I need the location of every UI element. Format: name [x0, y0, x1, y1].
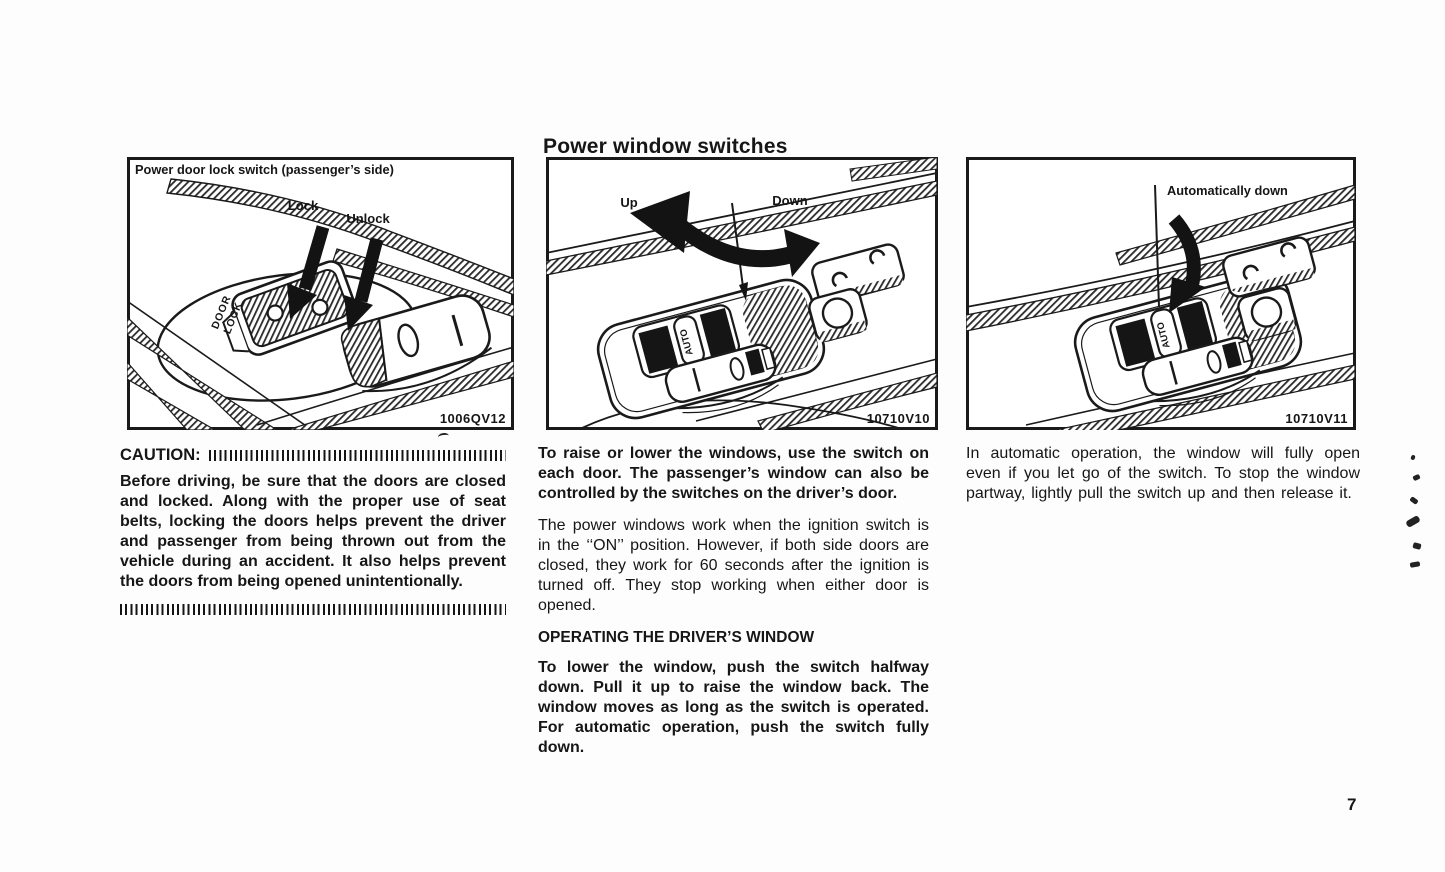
door-lock-illustration: DOOR LOCK Lock Unlock Power door lock sw… — [127, 157, 514, 430]
auto-down-illustration: AUTO Automatically down 10710V11 — [966, 157, 1356, 430]
tick-border-bottom — [120, 604, 506, 615]
paragraph-ignition: The power windows work when the ignition… — [538, 516, 929, 616]
scan-artifact — [1409, 496, 1418, 505]
scan-artifact — [1405, 515, 1421, 528]
auto-operation-column: In automatic operation, the window will … — [966, 444, 1360, 516]
up-label: Up — [620, 195, 637, 210]
unlock-label: Unlock — [346, 211, 390, 226]
lock-label: Lock — [288, 198, 319, 213]
figure-code: 1006QV12 — [440, 411, 506, 426]
figure-panel-door-lock: DOOR LOCK Lock Unlock Power door lock sw… — [127, 157, 514, 430]
scan-artifact — [1412, 474, 1420, 481]
figure-panel-window-updown: AUTO Up Down 10710V10 — [546, 157, 938, 430]
page-title: Power window switches — [543, 135, 788, 159]
caution-header: CAUTION: — [120, 444, 506, 466]
tick-border-top — [209, 450, 506, 461]
scan-artifact — [1410, 561, 1421, 568]
section-heading-drivers-window: OPERATING THE DRIVER’S WINDOW — [538, 628, 929, 648]
figure-code: 10710V10 — [867, 411, 930, 426]
caution-paragraph: Before driving, be sure that the doors a… — [120, 472, 506, 592]
paragraph-lower-window: To lower the window, push the switch hal… — [538, 658, 929, 758]
scan-artifact-tilde — [438, 432, 450, 440]
window-operation-column: To raise or lower the windows, use the s… — [538, 444, 929, 770]
down-label: Down — [772, 193, 807, 208]
caution-heading: CAUTION: — [120, 445, 201, 465]
paragraph-raise-lower: To raise or lower the windows, use the s… — [538, 444, 929, 504]
window-switch-illustration: AUTO Up Down 10710V10 — [546, 157, 938, 430]
figure-code: 10710V11 — [1285, 411, 1348, 426]
caution-column: CAUTION: Before driving, be sure that th… — [120, 444, 506, 615]
paragraph-auto-operation: In automatic operation, the window will … — [966, 444, 1360, 504]
scan-artifact — [1412, 542, 1421, 550]
scan-artifact — [1410, 454, 1415, 460]
figure-panel-auto-down: AUTO Automatically down 10710V11 — [966, 157, 1356, 430]
page-number: 7 — [1347, 795, 1356, 815]
figure-caption: Power door lock switch (passenger’s side… — [135, 162, 394, 177]
auto-down-label: Automatically down — [1167, 183, 1288, 198]
